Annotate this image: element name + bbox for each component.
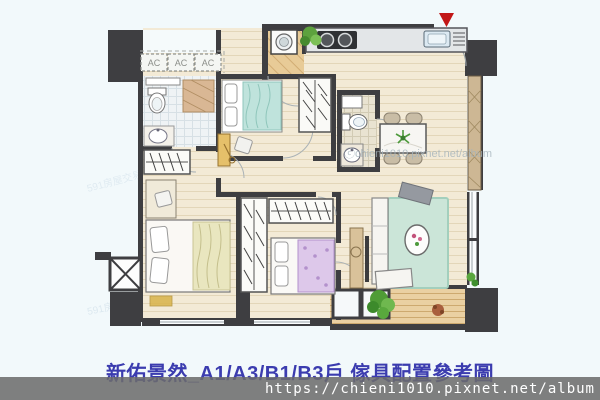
dining-chair (384, 113, 400, 124)
kitchen (306, 28, 467, 52)
shaft-column (110, 258, 141, 326)
living-windows (467, 192, 479, 285)
floorplan-image: 591房屋交易 591房屋交易 (0, 0, 600, 352)
cabinet3 (218, 134, 230, 166)
laundry (271, 30, 297, 54)
photo-watermark: ⓒchieni1010.pixnet.net/album (344, 145, 492, 161)
bath-shelf (146, 78, 180, 85)
bedside-mat (150, 296, 172, 306)
entry-cabinet (468, 76, 481, 190)
dining-chair (406, 113, 422, 124)
desk-chair (155, 190, 173, 207)
ac-label: AC (148, 58, 161, 68)
url-overlay-bar: https://chieni1010.pixnet.net/album (0, 377, 600, 400)
ac-label: AC (202, 58, 215, 68)
entry-triangle-icon (439, 13, 454, 27)
tv-icon (365, 236, 369, 282)
faint-watermark: 591房屋交易 (85, 168, 143, 195)
floorplan-page: 591房屋交易 591房屋交易 (0, 0, 600, 400)
bedroom2 (241, 198, 335, 294)
ac-label: AC (175, 58, 188, 68)
ac-platform (143, 30, 216, 53)
tv-console (350, 228, 363, 288)
sofa-chaise (375, 268, 412, 289)
url-text: https://chieni1010.pixnet.net/album (265, 381, 600, 397)
bath2-cabinet (342, 96, 362, 108)
ac-units: AC AC AC (140, 51, 224, 73)
coffee-table (405, 225, 429, 255)
